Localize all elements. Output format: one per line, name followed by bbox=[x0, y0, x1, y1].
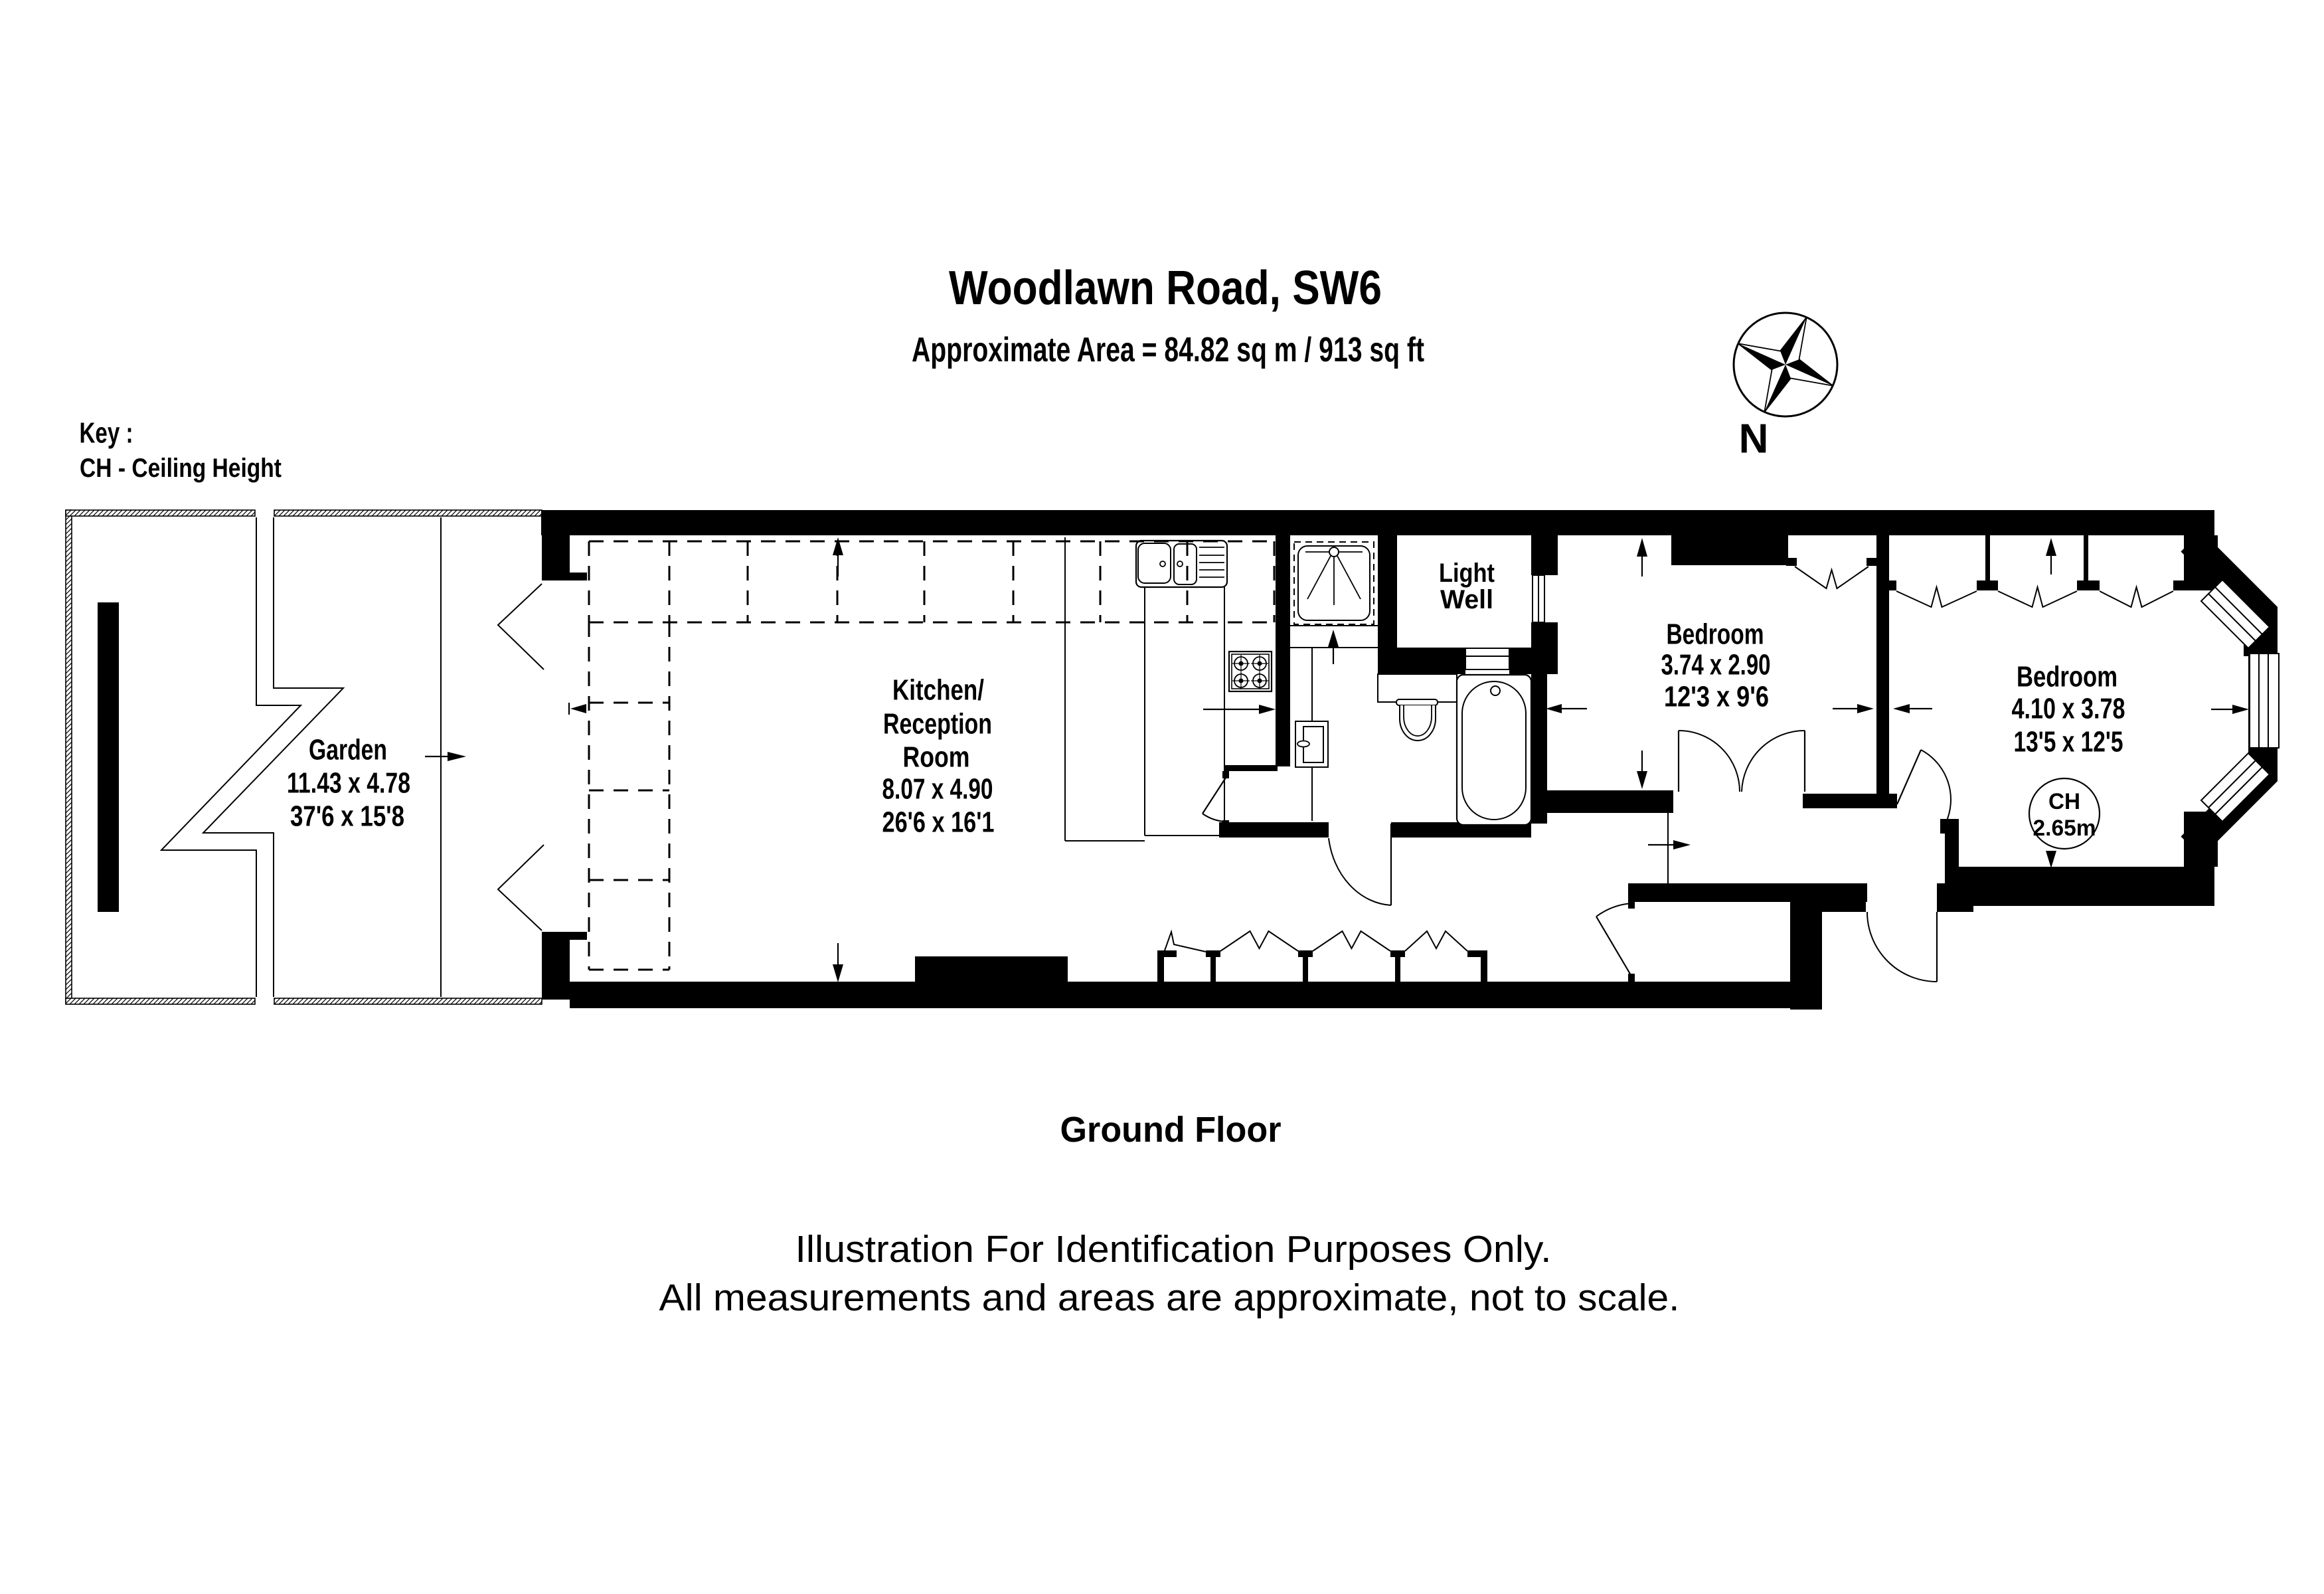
svg-text:Kitchen/: Kitchen/ bbox=[892, 674, 984, 707]
svg-text:2.65m: 2.65m bbox=[2033, 816, 2096, 841]
svg-text:4.10 x 3.78: 4.10 x 3.78 bbox=[2012, 693, 2125, 725]
svg-text:12'3 x 9'6: 12'3 x 9'6 bbox=[1664, 681, 1769, 713]
svg-text:8.07 x 4.90: 8.07 x 4.90 bbox=[882, 773, 993, 806]
svg-text:37'6 x 15'8: 37'6 x 15'8 bbox=[290, 800, 404, 833]
svg-text:CH - Ceiling Height: CH - Ceiling Height bbox=[80, 454, 282, 483]
svg-text:Bedroom: Bedroom bbox=[2017, 661, 2117, 693]
svg-text:13'5 x 12'5: 13'5 x 12'5 bbox=[2014, 726, 2123, 758]
svg-text:Bedroom: Bedroom bbox=[1667, 618, 1764, 651]
svg-text:N: N bbox=[1739, 416, 1769, 462]
svg-text:All measurements and areas are: All measurements and areas are approxima… bbox=[659, 1277, 1680, 1319]
svg-text:Room: Room bbox=[903, 741, 970, 774]
svg-text:Reception: Reception bbox=[883, 708, 992, 741]
svg-text:Well: Well bbox=[1440, 585, 1493, 614]
svg-text:Ground Floor: Ground Floor bbox=[1060, 1110, 1282, 1150]
svg-text:3.74 x 2.90: 3.74 x 2.90 bbox=[1661, 649, 1771, 681]
svg-text:Light: Light bbox=[1439, 559, 1495, 588]
svg-text:26'6 x 16'1: 26'6 x 16'1 bbox=[882, 806, 995, 839]
svg-text:Approximate Area = 84.82 sq m: Approximate Area = 84.82 sq m / 913 sq f… bbox=[912, 331, 1424, 369]
svg-text:Key :: Key : bbox=[80, 417, 133, 450]
svg-text:Woodlawn Road, SW6: Woodlawn Road, SW6 bbox=[949, 262, 1382, 315]
svg-text:Garden: Garden bbox=[309, 734, 387, 766]
svg-text:Illustration For Identificatio: Illustration For Identification Purposes… bbox=[795, 1228, 1552, 1271]
svg-text:CH: CH bbox=[2048, 789, 2080, 814]
svg-text:11.43 x 4.78: 11.43 x 4.78 bbox=[287, 767, 410, 800]
